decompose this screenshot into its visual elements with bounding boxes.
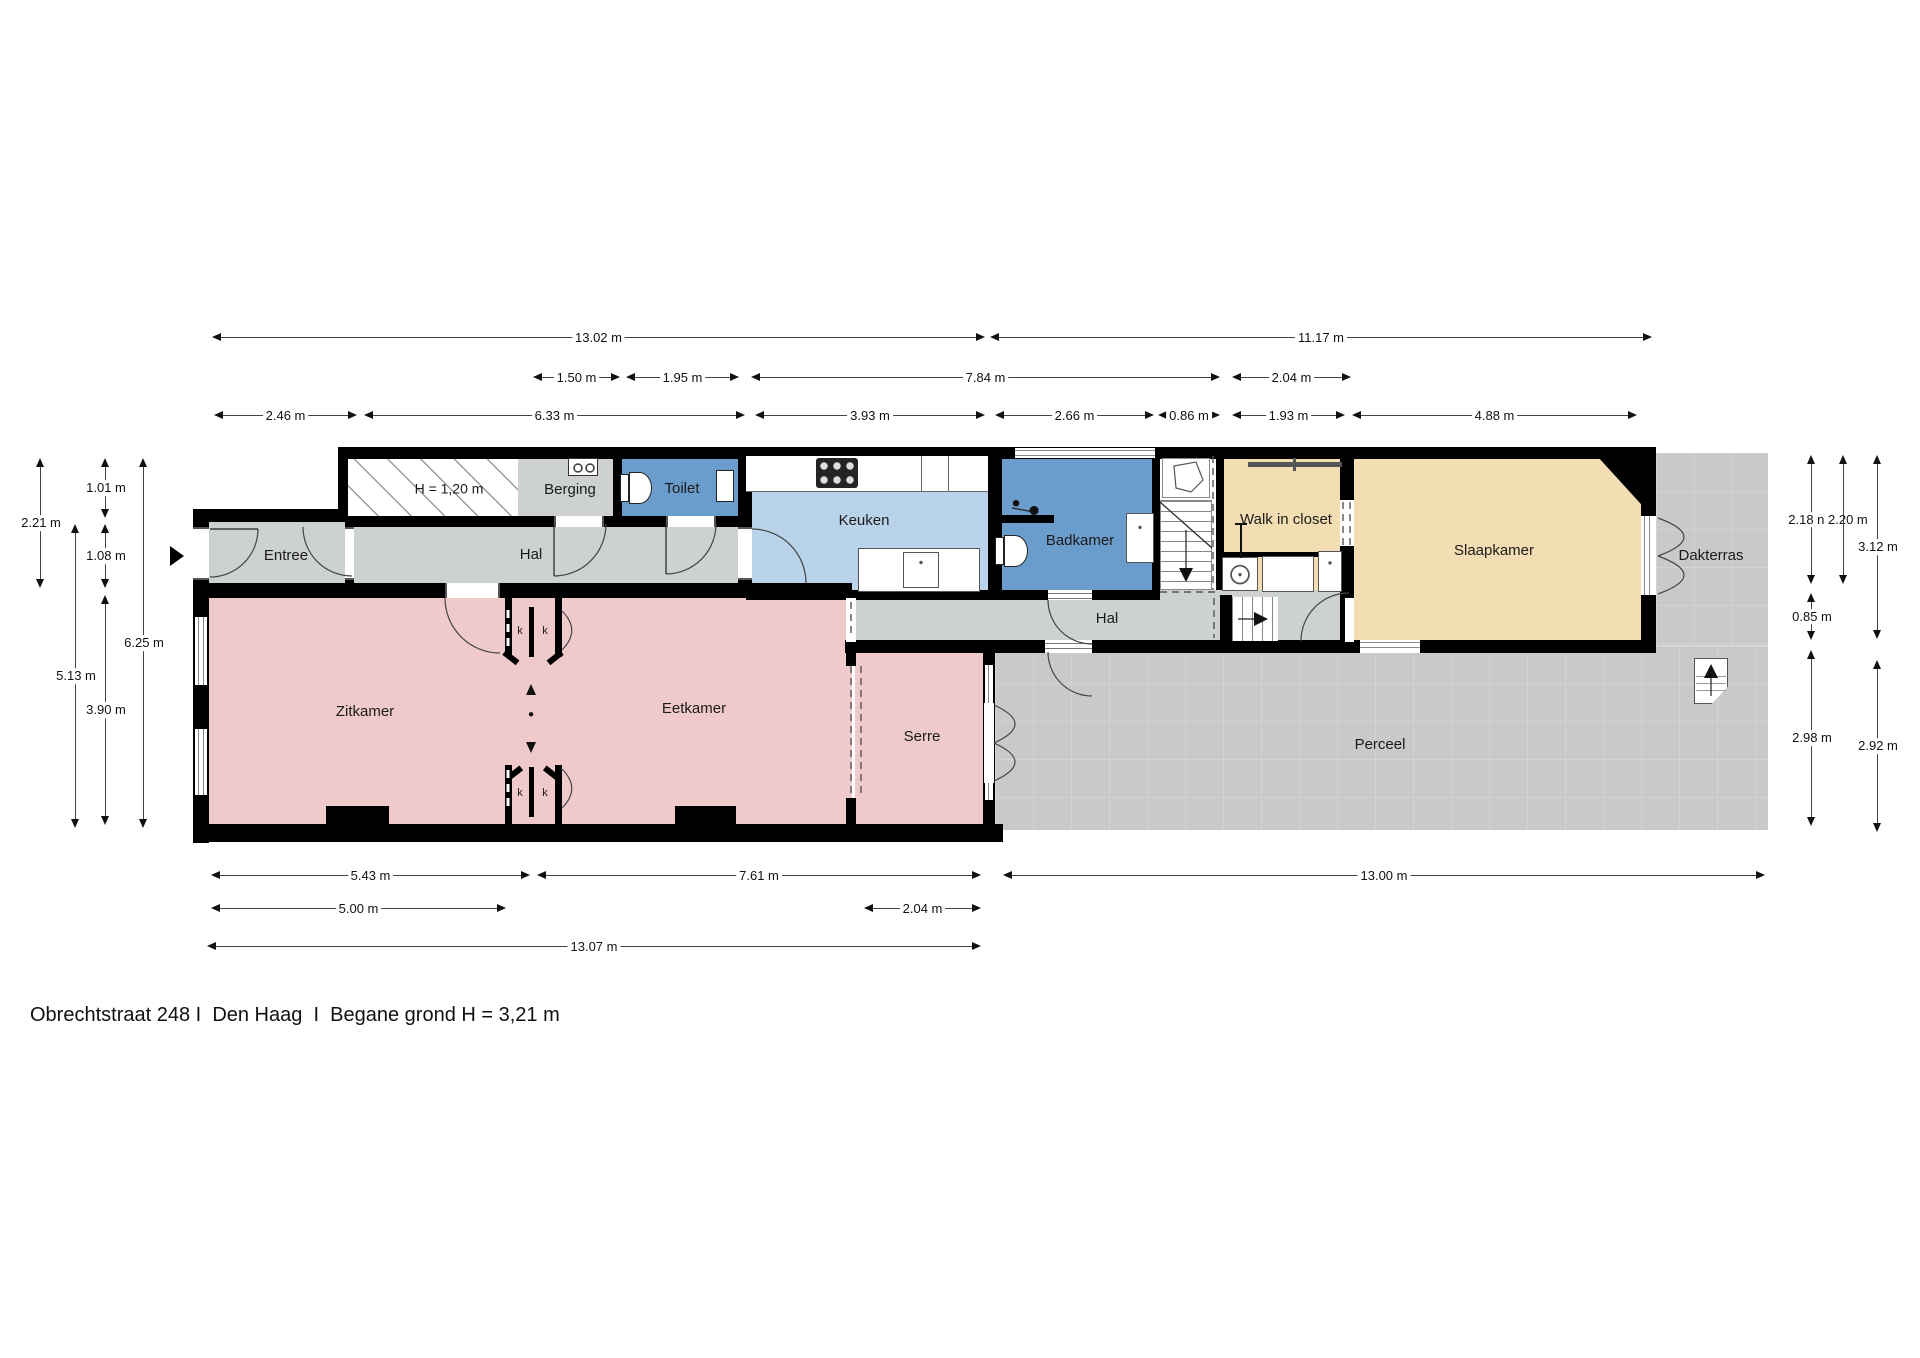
dimension-t9: 3.93 m [755, 408, 985, 424]
dimension-label-t10: 2.66 m [1052, 408, 1098, 424]
badkamer-halfwall [1002, 515, 1054, 523]
serre-glazing-bottom [985, 783, 993, 800]
dimension-label-b3: 13.00 m [1358, 868, 1411, 884]
counter-line-2 [948, 456, 949, 492]
chimney-a [326, 806, 389, 826]
dimension-label-b6: 13.07 m [568, 939, 621, 955]
counter-line-1 [921, 456, 922, 492]
dimension-t12: 1.93 m [1232, 408, 1345, 424]
room-label-berging: Berging [544, 482, 596, 499]
chimney-b [675, 806, 736, 826]
dimension-b6: 13.07 m [207, 939, 981, 955]
stairs-down-icon [1160, 500, 1212, 590]
kitchen-counter [746, 456, 988, 492]
closet-marker: k [517, 787, 523, 799]
label-low-height: H = 1,20 m [415, 481, 484, 496]
dimension-label-t3: 1.50 m [554, 370, 600, 386]
stairb-wall [1220, 595, 1232, 643]
closet-marker: k [517, 625, 523, 637]
dimension-b5: 2.04 m [864, 901, 981, 917]
dimension-l3: 1.08 m [98, 524, 114, 588]
dimension-t10: 2.66 m [995, 408, 1154, 424]
serre-pier-top [846, 638, 856, 666]
dimension-label-r2: 3.12 m [1855, 539, 1901, 555]
badkamer-sink-icon [1126, 513, 1154, 563]
eetkamer-hal-opening [846, 598, 856, 642]
serre-glazing-top [985, 665, 993, 703]
dimension-label-b4: 5.00 m [336, 901, 382, 917]
dimension-t1: 13.02 m [212, 330, 985, 346]
dimension-l6: 3.90 m [98, 595, 114, 825]
dimension-r1: 2.18 n 2.20 m [1804, 455, 1820, 584]
dimension-label-t13: 4.88 m [1472, 408, 1518, 424]
room-label-entree: Entree [264, 548, 308, 565]
island-sink-icon [903, 552, 939, 588]
badkamer-window [1015, 448, 1155, 458]
dimension-label-l6: 3.90 m [83, 702, 129, 718]
keuken-door-gap [738, 527, 752, 580]
dimension-t3: 1.50 m [533, 370, 620, 386]
dimension-t13: 4.88 m [1352, 408, 1637, 424]
dakterras-doors-glazing [1641, 516, 1656, 595]
serre-pier-bottom [846, 798, 856, 826]
bottom-wall [193, 824, 1003, 842]
badkamer-door-threshold [1048, 590, 1092, 600]
dimension-b1: 5.43 m [211, 868, 530, 884]
closet-marker: k [542, 625, 548, 637]
dimension-label-t2: 11.17 m [1295, 330, 1347, 346]
dimension-r5: 2.92 m [1870, 660, 1886, 832]
berging-door-gap [554, 516, 604, 527]
dimension-label-l2: 1.01 m [83, 480, 129, 496]
zitkamer-window-1 [195, 617, 207, 685]
floorplan-canvas: Entree Hal Berging H = 1,20 m Toilet Keu… [0, 0, 1920, 1358]
dimension-r1b [1836, 455, 1852, 584]
entree-door-gap [193, 527, 209, 580]
room-label-hal-front: Hal [520, 547, 543, 564]
dimension-label-b5: 2.04 m [900, 901, 946, 917]
dimension-r3: 0.85 m [1804, 593, 1820, 640]
keuken-badkamer-wall [988, 447, 1002, 590]
room-label-dakterras: Dakterras [1678, 548, 1743, 565]
dimension-t6: 2.04 m [1232, 370, 1351, 386]
dimension-label-t4: 1.95 m [660, 370, 706, 386]
room-label-walk-in-closet: Walk in closet [1240, 512, 1332, 529]
plan-title: Obrechtstraat 248 I Den Haag I Begane gr… [30, 1004, 560, 1027]
dimension-l1: 2.21 m [33, 458, 49, 588]
room-label-zitkamer: Zitkamer [336, 704, 394, 721]
dimension-label-t1: 13.02 m [572, 330, 625, 346]
dimension-l2: 1.01 m [98, 458, 114, 518]
stove-icon [816, 458, 858, 488]
dimension-label-t5: 7.84 m [963, 370, 1009, 386]
dimension-label-t6: 2.04 m [1269, 370, 1315, 386]
ensuite-top-right-wall [555, 598, 562, 657]
washing-machine-icon [568, 458, 598, 476]
closet-marker: k [542, 787, 548, 799]
dimension-label-b1: 5.43 m [348, 868, 394, 884]
dimension-label-t8: 6.33 m [532, 408, 578, 424]
back-bottom-wall [845, 640, 1656, 653]
dimension-label-l1: 2.21 m [18, 515, 64, 531]
dimension-label-r3: 0.85 m [1789, 609, 1835, 625]
dimension-l4: 6.25 m [136, 458, 152, 828]
dimension-t4: 1.95 m [626, 370, 739, 386]
dimension-label-t7: 2.46 m [263, 408, 309, 424]
room-label-badkamer: Badkamer [1046, 533, 1114, 550]
room-label-perceel: Perceel [1355, 737, 1406, 754]
garden-stairs-treads [1696, 676, 1726, 696]
ensuite-top-left-wall [505, 598, 512, 657]
wic-counter [1262, 556, 1314, 592]
dimension-label-t9: 3.93 m [847, 408, 893, 424]
wic-sink-icon [1318, 551, 1342, 592]
dimension-label-l3: 1.08 m [83, 548, 129, 564]
room-label-toilet: Toilet [664, 481, 699, 498]
dimension-t2: 11.17 m [990, 330, 1652, 346]
dimension-r4: 2.98 m [1804, 650, 1820, 826]
dimension-label-r5: 2.92 m [1855, 738, 1901, 754]
zitkamer-eetkamer-floor [202, 590, 852, 826]
dimension-t7: 2.46 m [214, 408, 357, 424]
dimension-r2: 3.12 m [1870, 455, 1886, 639]
dimension-t8: 6.33 m [364, 408, 745, 424]
entree-hal-door-gap [345, 527, 354, 580]
room-label-keuken: Keuken [839, 513, 890, 530]
dimension-l5: 5.13 m [68, 524, 84, 828]
toilet-door-gap [666, 516, 716, 527]
stairs-up-icon [1232, 597, 1278, 641]
entree-top-wall [193, 509, 345, 522]
dimension-label-t12: 1.93 m [1266, 408, 1312, 424]
zitkamer-window-2 [195, 729, 207, 795]
room-label-serre: Serre [904, 729, 941, 746]
closet-rail-tick [1293, 458, 1296, 471]
tuin-door-threshold [1045, 640, 1092, 653]
zitkamer-door-gap [445, 583, 500, 598]
dimension-b4: 5.00 m [211, 901, 506, 917]
ensuite-bot-mid-wall [529, 767, 534, 817]
pipe-line [1240, 524, 1242, 558]
dimension-label-l5: 5.13 m [53, 668, 99, 684]
dimension-b3: 13.00 m [1003, 868, 1765, 884]
dimension-label-b2: 7.61 m [736, 868, 782, 884]
slaapkamer-hal-door-gap [1345, 598, 1354, 642]
shower-cabin [1162, 458, 1210, 498]
dimension-label-r1: 2.18 n 2.20 m [1785, 512, 1871, 528]
room-label-hal-back: Hal [1096, 611, 1119, 628]
ensuite-top-mid-wall [529, 607, 534, 657]
dimension-label-t11: 0.86 m [1166, 408, 1212, 424]
badkamer-toilet-tank [995, 537, 1004, 565]
dimension-label-l4: 6.25 m [121, 635, 167, 651]
room-label-slaapkamer: Slaapkamer [1454, 543, 1534, 560]
dimension-t5: 7.84 m [751, 370, 1220, 386]
toilet-sink-icon [716, 470, 734, 502]
serre-doors-gap [984, 703, 994, 783]
toilet-tank [620, 474, 629, 502]
wic-appliance-icon [1222, 557, 1258, 591]
dimension-t11: 0.86 m [1158, 408, 1220, 424]
room-label-eetkamer: Eetkamer [662, 701, 726, 718]
dimension-label-r4: 2.98 m [1789, 730, 1835, 746]
wic-doorway [1340, 500, 1354, 546]
dimension-b2: 7.61 m [537, 868, 981, 884]
entrance-arrow [170, 546, 184, 566]
slaapkamer-window [1360, 640, 1420, 653]
